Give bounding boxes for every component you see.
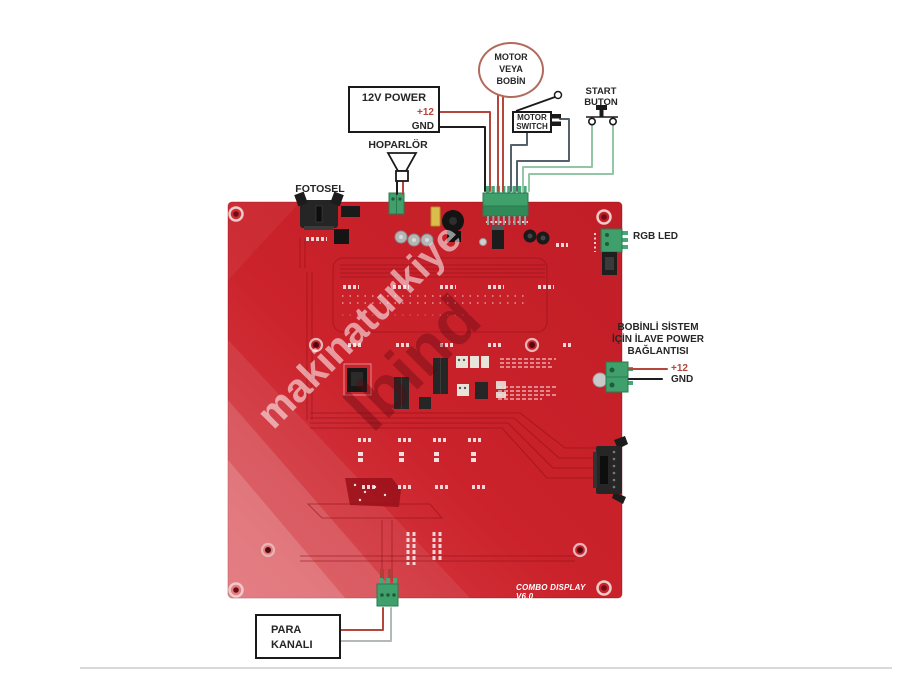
speaker-label: HOPARLÖR: [366, 139, 430, 151]
motor-label-line: BOBİN: [497, 76, 526, 88]
page-divider: [80, 667, 892, 669]
motor-switch-box: MOTOR SWITCH: [512, 111, 552, 133]
board-title: COMBO DISPLAY V6.0: [516, 583, 600, 601]
start-label-line: START: [577, 86, 625, 97]
speaker-terminal-icon: [389, 193, 404, 214]
wire-aux-power: [629, 369, 667, 379]
start-label-line: BUTON: [577, 97, 625, 108]
aux-power-label: BOBİNLİ SİSTEM İÇİN İLAVE POWER BAĞLANTI…: [610, 322, 706, 357]
motor-or-coil-label: MOTOR VEYA BOBİN: [478, 42, 544, 98]
wire-coin-channel: [341, 608, 391, 641]
motor-switch-line: SWITCH: [516, 122, 548, 131]
coin-label-line: KANALI: [271, 638, 339, 653]
rgb-led-label: RGB LED: [633, 231, 679, 243]
aux-gnd-label: GND: [671, 374, 693, 386]
aux-label-line: BAĞLANTISI: [610, 346, 706, 358]
power-gnd-label: GND: [412, 121, 434, 133]
power-plus12-label: +12: [417, 107, 434, 119]
aux-label-line: BOBİNLİ SİSTEM: [610, 322, 706, 334]
motor-label-line: VEYA: [499, 64, 523, 76]
wire-speaker: [397, 181, 403, 194]
rgb-led-terminal-icon: [601, 229, 628, 275]
power-supply-box: 12V POWER +12 GND: [348, 86, 440, 133]
power-supply-title: 12V POWER: [350, 92, 438, 105]
product-wiring-diagram: makinaturkiye lbind MOTOR VEYA BOBİN 12V…: [0, 0, 900, 675]
wire-gnd: [440, 127, 485, 191]
smd-component: [334, 229, 349, 244]
diagram-graphics: [0, 0, 900, 675]
start-button-label: START BUTON: [577, 86, 625, 108]
coin-label-line: PARA: [271, 623, 339, 638]
aux-label-line: İÇİN İLAVE POWER: [610, 334, 706, 346]
speaker-icon: [388, 153, 416, 181]
motor-switch-line: MOTOR: [517, 113, 547, 122]
smd-component: [341, 206, 360, 217]
coin-channel-box: PARA KANALI: [255, 614, 341, 659]
photocell-connector-icon: [294, 192, 344, 230]
motor-label-line: MOTOR: [494, 52, 527, 64]
photocell-label: FOTOSEL: [294, 183, 346, 195]
idc-connector-icon: [593, 436, 628, 504]
wire-plus12: [440, 92, 503, 191]
